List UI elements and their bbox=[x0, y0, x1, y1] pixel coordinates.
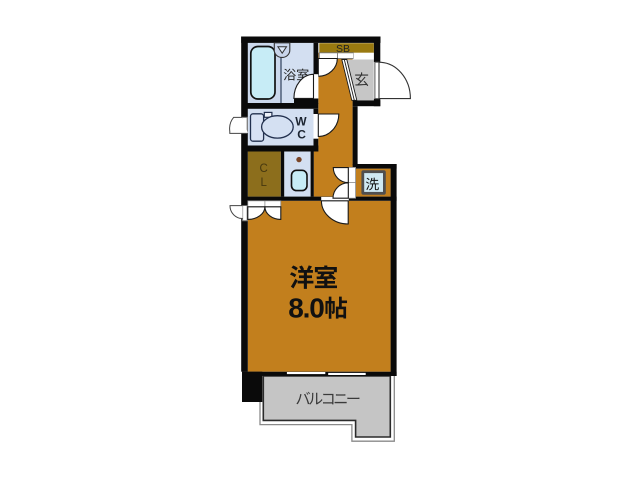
svg-text:8.0: 8.0 bbox=[288, 292, 324, 323]
svg-text:C: C bbox=[297, 128, 306, 142]
svg-text:L: L bbox=[261, 177, 268, 189]
svg-text:C: C bbox=[260, 163, 268, 175]
svg-text:W: W bbox=[295, 114, 307, 128]
